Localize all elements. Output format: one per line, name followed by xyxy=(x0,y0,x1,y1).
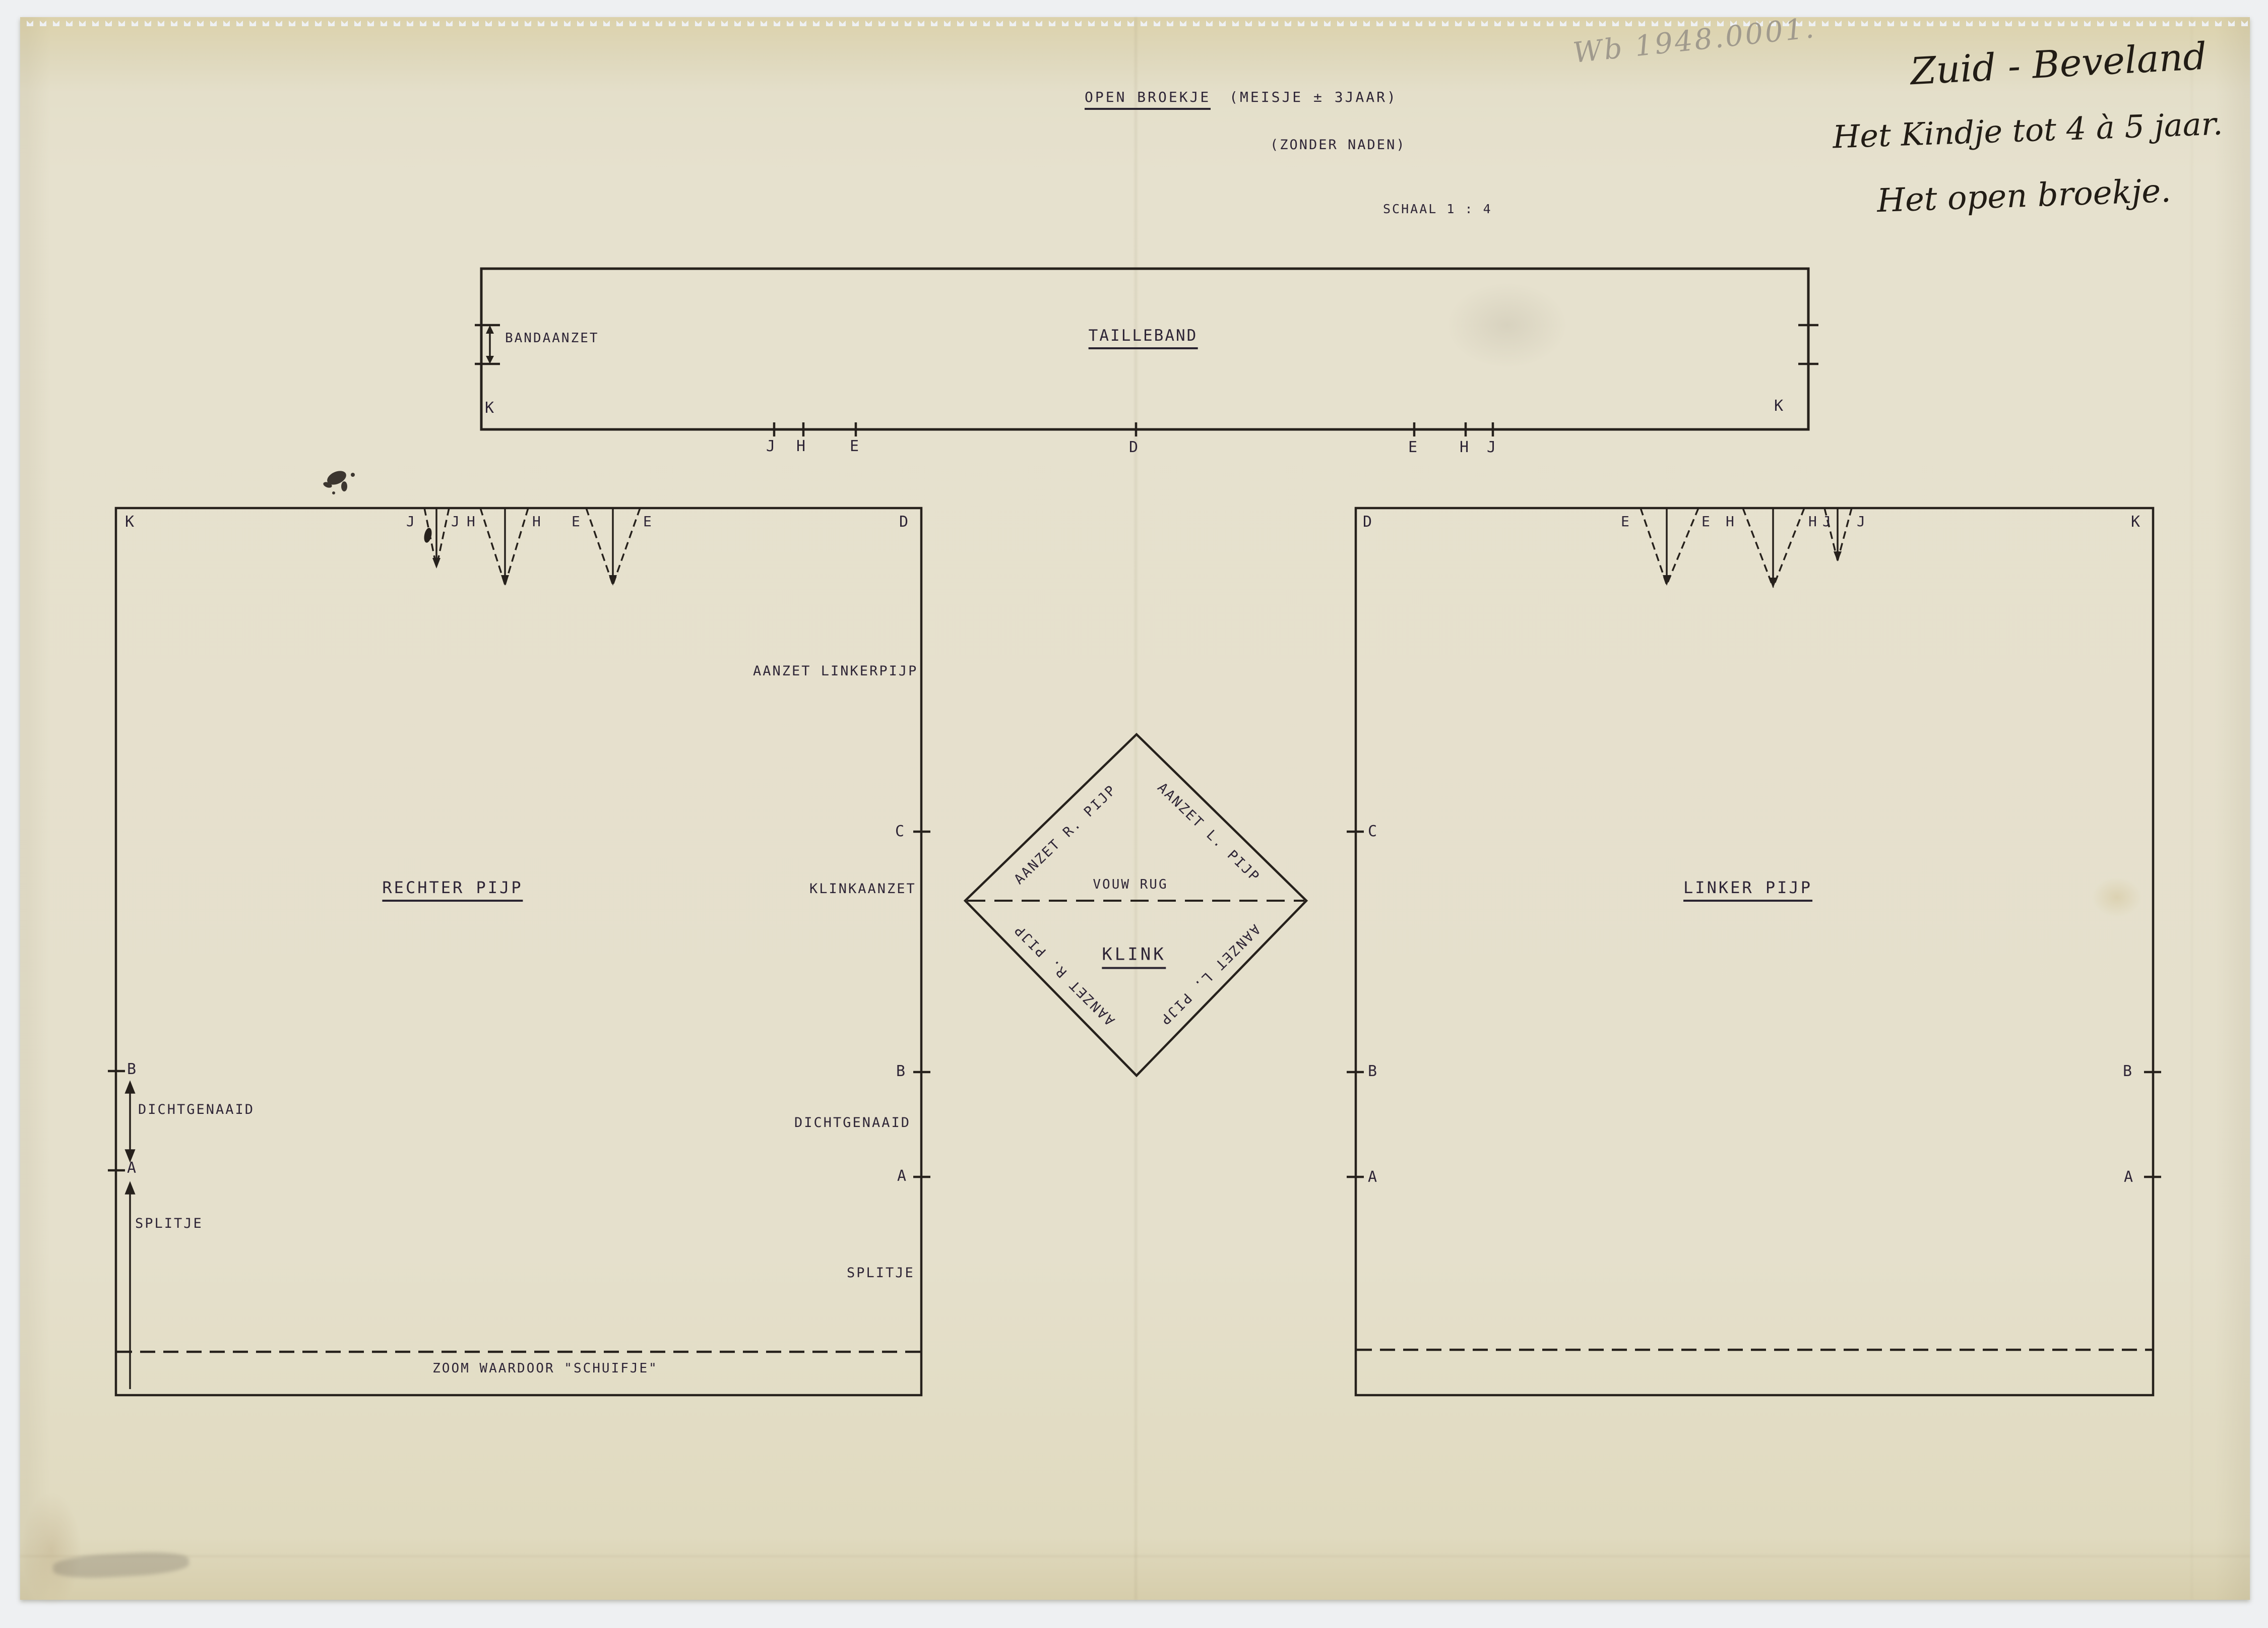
point-H: H xyxy=(467,513,475,530)
right-leg-outline xyxy=(116,508,921,1395)
point-H: H xyxy=(1460,439,1469,456)
point-K: K xyxy=(485,399,494,417)
point-J: J xyxy=(1822,513,1831,530)
point-A: A xyxy=(897,1167,906,1185)
point-K: K xyxy=(125,513,134,531)
point-H: H xyxy=(532,513,541,530)
point-B: B xyxy=(1368,1062,1377,1080)
title-suffix: (MEISJE ± 3JAAR) xyxy=(1229,89,1398,105)
left-leg-outline xyxy=(1356,508,2153,1395)
point-J: J xyxy=(406,513,415,530)
title-main: OPEN BROEKJE xyxy=(1085,89,1211,110)
sewn-shut-label-right: DICHTGENAAID xyxy=(794,1115,911,1131)
point-B: B xyxy=(2123,1062,2132,1080)
point-E: E xyxy=(1702,513,1710,530)
page-title: OPEN BROEKJE (MEISJE ± 3JAAR) xyxy=(1085,89,1398,105)
gusset-title: KLINK xyxy=(1102,945,1166,969)
point-H: H xyxy=(1808,513,1817,530)
point-C: C xyxy=(1368,823,1377,840)
point-B: B xyxy=(896,1062,905,1080)
pattern-drawing xyxy=(0,0,2268,1628)
subtitle: (ZONDER NADEN) xyxy=(1270,137,1406,153)
point-J: J xyxy=(1487,439,1496,456)
point-C: C xyxy=(895,823,904,840)
point-E: E xyxy=(1408,439,1417,456)
slit-label-right: SPLITJE xyxy=(847,1265,915,1281)
point-D: D xyxy=(1363,513,1372,531)
waistband-attach-label: BANDAANZET xyxy=(505,331,599,346)
point-K: K xyxy=(1774,397,1783,415)
right-leg-title: RECHTER PIJP xyxy=(382,878,523,902)
left-leg-darts xyxy=(1641,508,1852,587)
point-B: B xyxy=(127,1060,136,1078)
gusset-attach-label: KLINKAANZET xyxy=(809,881,916,897)
point-J: J xyxy=(451,513,460,530)
waistband-title: TAILLEBAND xyxy=(1089,327,1198,349)
left-leg-title: LINKER PIJP xyxy=(1683,878,1812,902)
slit-arrow xyxy=(126,1183,134,1389)
point-H: H xyxy=(1726,513,1734,530)
point-E: E xyxy=(850,437,859,455)
point-E: E xyxy=(572,513,580,530)
hem-label: ZOOM WAARDOOR "SCHUIFJE" xyxy=(432,1361,658,1376)
point-K: K xyxy=(2131,513,2140,531)
point-A: A xyxy=(1368,1168,1377,1186)
scale-note: SCHAAL 1 : 4 xyxy=(1383,202,1492,216)
point-E: E xyxy=(1621,513,1629,530)
gusset-fold-label: VOUW RUG xyxy=(1093,877,1168,892)
point-D: D xyxy=(1129,439,1138,456)
point-J: J xyxy=(1857,513,1865,530)
point-A: A xyxy=(127,1159,136,1177)
slit-label-left: SPLITJE xyxy=(135,1216,203,1231)
sewn-shut-arrow xyxy=(126,1083,134,1160)
point-J: J xyxy=(766,437,775,455)
attach-left-leg-label: AANZET LINKERPIJP xyxy=(753,663,918,679)
point-A: A xyxy=(2124,1168,2133,1186)
sewn-shut-label-left: DICHTGENAAID xyxy=(138,1102,255,1117)
point-D: D xyxy=(899,513,908,531)
point-H: H xyxy=(796,437,805,455)
gusset-outline xyxy=(965,734,1306,1076)
ink-blot xyxy=(323,468,355,494)
point-E: E xyxy=(643,513,652,530)
